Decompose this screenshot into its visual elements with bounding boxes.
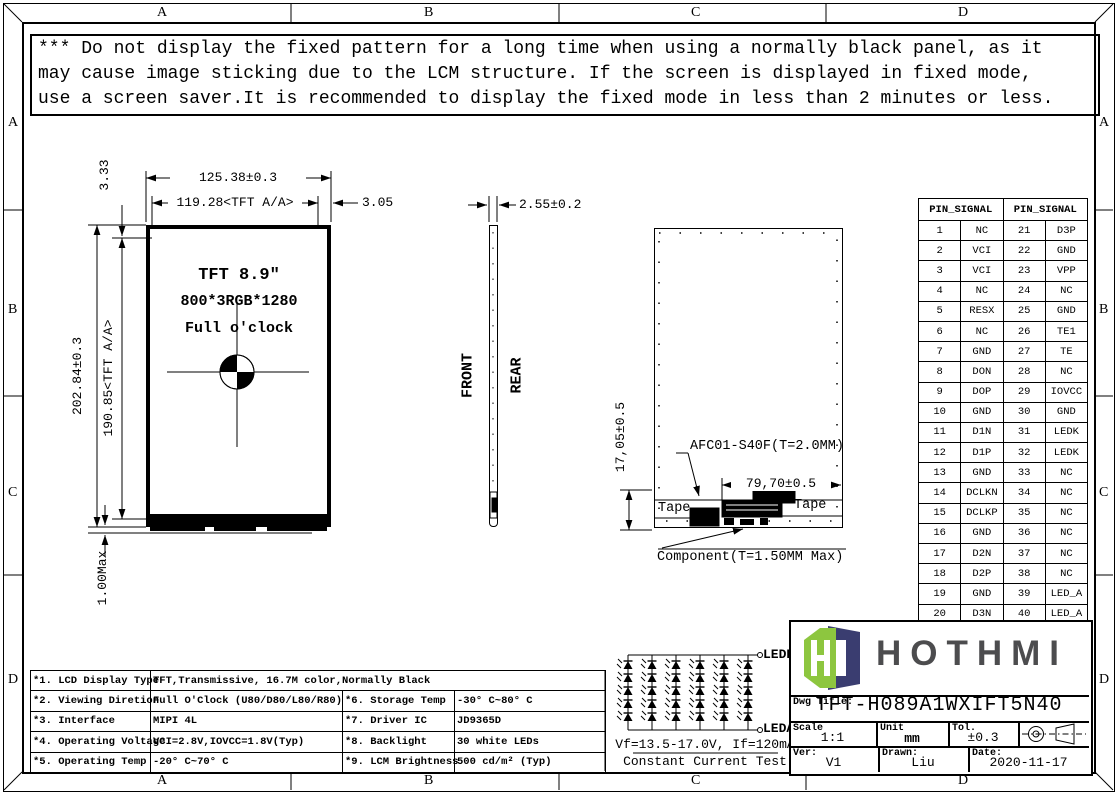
spec-value-cell: JD9365D: [455, 711, 606, 731]
dim-overall-height: 202.84±0.3: [71, 331, 85, 421]
grid-row-label-right: C: [1099, 486, 1108, 500]
dim-thickness: 2.55±0.2: [519, 198, 581, 212]
spec-table-row: *5. Operating Temp-20° C~70° C*9. LCM Br…: [31, 752, 606, 772]
spec-value-cell: TFT,Transmissive, 16.7M color,Normally B…: [151, 671, 606, 691]
pin-signal-cell: NC: [1045, 463, 1087, 483]
grid-col-label-top: B: [424, 6, 433, 20]
spec-table-row: *4. Operating VoltageVCI=2.8V,IOVCC=1.8V…: [31, 732, 606, 752]
pin-number-cell: 16: [919, 523, 961, 543]
grid-col-label-bottom: B: [424, 774, 433, 788]
display-size-text: TFT 8.9″: [150, 266, 328, 285]
side-view-profile: [489, 225, 498, 527]
pin-number-cell: 10: [919, 402, 961, 422]
grid-row-label-right: A: [1099, 116, 1109, 130]
pin-signal-cell: NC: [1045, 544, 1087, 564]
pin-table-row: 3VCI23VPP: [919, 261, 1088, 281]
pin-signal-cell: RESX: [961, 301, 1003, 321]
spec-label-cell: *3. Interface: [31, 711, 151, 731]
pin-signal-cell: NC: [1045, 483, 1087, 503]
pin-signal-cell: LED_A: [1045, 584, 1087, 604]
grid-col-label-bottom: D: [958, 774, 968, 788]
pin-number-cell: 28: [1003, 362, 1045, 382]
pin-signal-cell: VPP: [1045, 261, 1087, 281]
pin-number-cell: 5: [919, 301, 961, 321]
grid-row-label-right: D: [1099, 673, 1109, 687]
pin-number-cell: 13: [919, 463, 961, 483]
pin-number-cell: 24: [1003, 281, 1045, 301]
grid-row-label-left: A: [8, 116, 18, 130]
pin-number-cell: 21: [1003, 221, 1045, 241]
grid-col-label-top: A: [157, 6, 167, 20]
pin-number-cell: 23: [1003, 261, 1045, 281]
led-test-caption: Constant Current Test: [615, 755, 795, 769]
pin-number-cell: 31: [1003, 422, 1045, 442]
pin-signal-cell: NC: [961, 281, 1003, 301]
pin-number-cell: 27: [1003, 342, 1045, 362]
pin-signal-cell: IOVCC: [1045, 382, 1087, 402]
pin-table-row: 12D1P32LEDK: [919, 443, 1088, 463]
pin-number-cell: 22: [1003, 241, 1045, 261]
pin-number-cell: 14: [919, 483, 961, 503]
pin-signal-cell: D1N: [961, 422, 1003, 442]
spec-value-cell: 30 white LEDs: [455, 732, 606, 752]
pin-signal-cell: GND: [961, 523, 1003, 543]
spec-table: *1. LCD Display TypeTFT,Transmissive, 16…: [30, 670, 606, 773]
pin-signal-cell: DON: [961, 362, 1003, 382]
pin-number-cell: 33: [1003, 463, 1045, 483]
pin-signal-cell: GND: [961, 463, 1003, 483]
pin-number-cell: 34: [1003, 483, 1045, 503]
pin-signal-cell: NC: [961, 221, 1003, 241]
pin-number-cell: 35: [1003, 503, 1045, 523]
pin-signal-cell: NC: [1045, 362, 1087, 382]
grid-col-label-top: D: [958, 6, 968, 20]
spec-label-cell: *2. Viewing Diretion: [31, 691, 151, 711]
pin-table-row: 13GND33NC: [919, 463, 1088, 483]
pin-number-cell: 18: [919, 564, 961, 584]
hothmi-logo-icon: [800, 626, 864, 690]
dim-connector-width: 79,70±0.5: [731, 477, 831, 491]
connector-callout: AFC01-S40F(T=2.0MM): [690, 440, 844, 454]
pin-signal-cell: DOP: [961, 382, 1003, 402]
pin-number-cell: 4: [919, 281, 961, 301]
pin-signal-cell: TE: [1045, 342, 1087, 362]
pin-table-row: 7GND27TE: [919, 342, 1088, 362]
pin-signal-cell: D3P: [1045, 221, 1087, 241]
pin-signal-cell: VCI: [961, 241, 1003, 261]
pin-number-cell: 17: [919, 544, 961, 564]
spec-label-cell: *7. Driver IC: [343, 711, 455, 731]
pin-table-row: 10GND30GND: [919, 402, 1088, 422]
led-vf-spec: Vf=13.5-17.0V, If=120mA: [615, 738, 795, 752]
pin-table-row: 18D2P38NC: [919, 564, 1088, 584]
engineering-drawing-sheet: ABCDABCDABCDABCD *** Do not display the …: [0, 0, 1118, 795]
display-resolution-text: 800*3RGB*1280: [150, 293, 328, 310]
side-front-label: FRONT: [462, 351, 477, 401]
spec-table-row: *2. Viewing DiretionFull O'Clock (U80/D8…: [31, 691, 606, 711]
pin-table-row: 11D1N31LEDK: [919, 422, 1088, 442]
pin-table-header-right: PIN_SIGNAL: [1003, 199, 1088, 221]
pin-signal-cell: DCLKP: [961, 503, 1003, 523]
pin-signal-cell: GND: [961, 584, 1003, 604]
pin-table-row: 1NC21D3P: [919, 221, 1088, 241]
spec-value-cell: -30° C~80° C: [455, 691, 606, 711]
pin-signal-table: PIN_SIGNAL PIN_SIGNAL 1NC21D3P2VCI22GND3…: [918, 198, 1088, 625]
pin-number-cell: 25: [1003, 301, 1045, 321]
pin-signal-cell: GND: [1045, 402, 1087, 422]
pin-signal-cell: GND: [1045, 301, 1087, 321]
pin-number-cell: 29: [1003, 382, 1045, 402]
tol-value: ±0.3: [948, 731, 1018, 745]
grid-row-label-left: C: [8, 486, 17, 500]
pin-table-row: 2VCI22GND: [919, 241, 1088, 261]
pin-signal-cell: NC: [1045, 523, 1087, 543]
brand-wordmark: HOTHMI: [876, 635, 1068, 673]
pin-table-row: 14DCLKN34NC: [919, 483, 1088, 503]
pin-table-row: 8DON28NC: [919, 362, 1088, 382]
pin-table-header-left: PIN_SIGNAL: [919, 199, 1004, 221]
pin-number-cell: 9: [919, 382, 961, 402]
tape-label-right: Tape: [794, 499, 826, 513]
pin-signal-cell: D2P: [961, 564, 1003, 584]
pin-table-row: 4NC24NC: [919, 281, 1088, 301]
pin-signal-cell: VCI: [961, 261, 1003, 281]
spec-table-row: *3. InterfaceMIPI 4L*7. Driver ICJD9365D: [31, 711, 606, 731]
pin-number-cell: 30: [1003, 402, 1045, 422]
grid-row-label-left: D: [8, 673, 18, 687]
pin-number-cell: 26: [1003, 321, 1045, 341]
unit-value: mm: [876, 732, 948, 746]
display-viewing-text: Full o'clock: [150, 320, 328, 337]
projection-symbol-icon: [1020, 722, 1088, 746]
spec-table-row: *1. LCD Display TypeTFT,Transmissive, 16…: [31, 671, 606, 691]
dim-aa-width: 119.28<TFT A/A>: [168, 196, 302, 210]
pin-number-cell: 32: [1003, 443, 1045, 463]
pin-number-cell: 38: [1003, 564, 1045, 584]
pin-number-cell: 39: [1003, 584, 1045, 604]
pin-signal-cell: GND: [961, 402, 1003, 422]
pin-number-cell: 15: [919, 503, 961, 523]
pin-number-cell: 11: [919, 422, 961, 442]
spec-label-cell: *6. Storage Temp: [343, 691, 455, 711]
warning-note: *** Do not display the fixed pattern for…: [30, 34, 1100, 116]
pin-signal-cell: D1P: [961, 443, 1003, 463]
warning-line: use a screen saver.It is recommended to …: [38, 87, 1092, 112]
tape-label-left: Tape: [658, 502, 690, 516]
spec-value-cell: 500 cd/m² (Typ): [455, 752, 606, 772]
spec-label-cell: *4. Operating Voltage: [31, 732, 151, 752]
pin-table-row: 17D2N37NC: [919, 544, 1088, 564]
ver-value: V1: [789, 756, 878, 770]
drawn-value: Liu: [878, 756, 968, 770]
pin-number-cell: 12: [919, 443, 961, 463]
pin-number-cell: 19: [919, 584, 961, 604]
dwg-title-value: TFT-H089A1WXIFT5N40: [789, 699, 1089, 713]
pin-signal-cell: NC: [1045, 503, 1087, 523]
pin-number-cell: 37: [1003, 544, 1045, 564]
spec-label-cell: *5. Operating Temp: [31, 752, 151, 772]
pin-signal-cell: NC: [1045, 281, 1087, 301]
scale-value: 1:1: [789, 731, 876, 745]
spec-label-cell: *8. Backlight: [343, 732, 455, 752]
spec-value-cell: VCI=2.8V,IOVCC=1.8V(Typ): [151, 732, 343, 752]
grid-col-label-bottom: A: [157, 774, 167, 788]
pin-signal-cell: GND: [961, 342, 1003, 362]
grid-row-label-left: B: [8, 303, 17, 317]
pin-signal-cell: TE1: [1045, 321, 1087, 341]
grid-row-label-right: B: [1099, 303, 1108, 317]
spec-value-cell: MIPI 4L: [151, 711, 343, 731]
warning-line: *** Do not display the fixed pattern for…: [38, 37, 1092, 62]
pin-signal-cell: DCLKN: [961, 483, 1003, 503]
pin-table-row: 6NC26TE1: [919, 321, 1088, 341]
title-block-divider: [789, 746, 1089, 748]
pin-number-cell: 3: [919, 261, 961, 281]
grid-col-label-top: C: [691, 6, 700, 20]
pin-signal-cell: GND: [1045, 241, 1087, 261]
date-value: 2020-11-17: [968, 756, 1089, 770]
dim-top-margin: 3.33: [98, 155, 112, 195]
pin-number-cell: 8: [919, 362, 961, 382]
spec-value-cell: Full O'Clock (U80/D80/L80/R80): [151, 691, 343, 711]
pin-number-cell: 36: [1003, 523, 1045, 543]
pin-table-row: 5RESX25GND: [919, 301, 1088, 321]
pin-number-cell: 1: [919, 221, 961, 241]
pin-table-row: 16GND36NC: [919, 523, 1088, 543]
pin-table-row: 9DOP29IOVCC: [919, 382, 1088, 402]
side-rear-label: REAR: [511, 354, 526, 398]
pin-number-cell: 6: [919, 321, 961, 341]
pin-table-row: 15DCLKP35NC: [919, 503, 1088, 523]
dim-overall-width: 125.38±0.3: [170, 171, 306, 185]
pin-signal-cell: NC: [1045, 564, 1087, 584]
dim-connector-height: 17,05±0.5: [614, 398, 628, 476]
component-callout: Component(T=1.50MM Max): [657, 551, 843, 565]
spec-label-cell: *9. LCM Brightness: [343, 752, 455, 772]
pin-signal-cell: NC: [961, 321, 1003, 341]
pin-number-cell: 2: [919, 241, 961, 261]
grid-col-label-bottom: C: [691, 774, 700, 788]
dim-right-margin: 3.05: [362, 196, 393, 210]
dim-bottom-max: 1.00Max: [96, 548, 110, 608]
pin-signal-cell: LEDK: [1045, 422, 1087, 442]
panel-bottom-bezel: [150, 514, 327, 523]
spec-value-cell: -20° C~70° C: [151, 752, 343, 772]
dim-aa-height: 190.85<TFT A/A>: [102, 318, 116, 438]
spec-label-cell: *1. LCD Display Type: [31, 671, 151, 691]
pin-signal-cell: LEDK: [1045, 443, 1087, 463]
pin-table-row: 19GND39LED_A: [919, 584, 1088, 604]
pin-signal-cell: D2N: [961, 544, 1003, 564]
pin-number-cell: 7: [919, 342, 961, 362]
warning-line: may cause image sticking due to the LCM …: [38, 62, 1092, 87]
